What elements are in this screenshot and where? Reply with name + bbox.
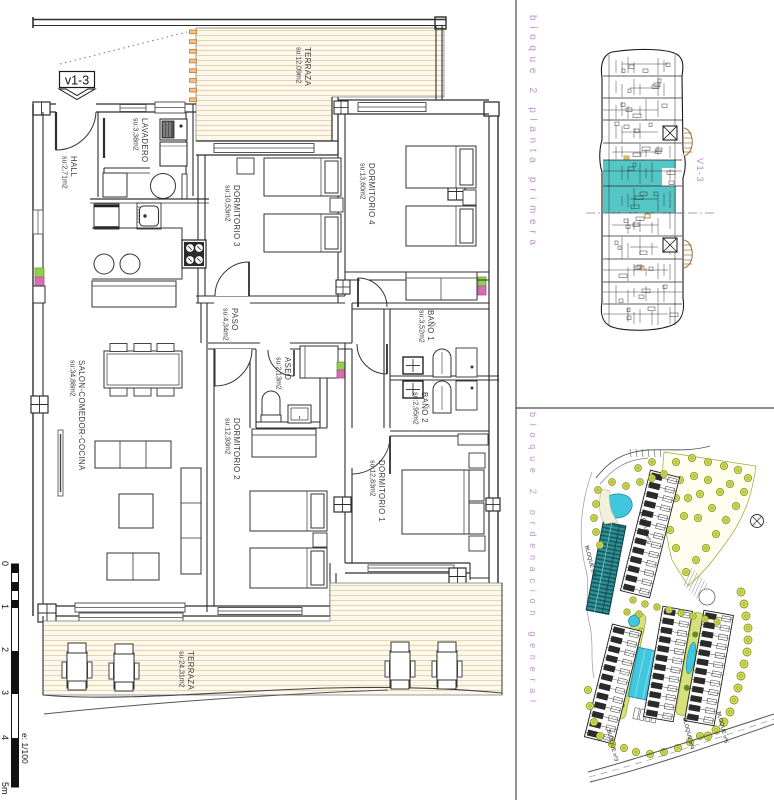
svg-text:su:34,88m2: su:34,88m2 — [69, 360, 76, 397]
svg-text:su:3,52m2: su:3,52m2 — [418, 310, 425, 343]
svg-text:su:24,31m2: su:24,31m2 — [178, 651, 185, 688]
svg-text:3: 3 — [0, 690, 10, 695]
svg-text:HALL: HALL — [69, 156, 78, 177]
svg-text:4: 4 — [0, 735, 10, 740]
svg-text:V1-3: V1-3 — [695, 158, 705, 183]
svg-text:BAÑO 1: BAÑO 1 — [426, 310, 435, 341]
svg-text:su:10,53m2: su:10,53m2 — [224, 185, 231, 222]
svg-text:5m: 5m — [0, 782, 10, 795]
svg-text:PASO: PASO — [230, 308, 239, 331]
svg-text:DORMITORIO 4: DORMITORIO 4 — [367, 163, 376, 225]
svg-text:DORMITORIO 1: DORMITORIO 1 — [377, 460, 386, 522]
svg-text:BAÑO 2: BAÑO 2 — [420, 392, 429, 423]
svg-text:e: 1/100: e: 1/100 — [20, 733, 30, 764]
svg-text:su:2,95m2: su:2,95m2 — [412, 392, 419, 425]
svg-text:su:3,38m2: su:3,38m2 — [132, 118, 139, 151]
svg-text:bloque 2 planta primera: bloque 2 planta primera — [527, 15, 538, 245]
svg-text:LAVADERO: LAVADERO — [140, 118, 149, 163]
svg-text:su:13,60m2: su:13,60m2 — [359, 163, 366, 200]
svg-text:su:12,93m2: su:12,93m2 — [224, 418, 231, 455]
svg-text:DORMITORIO 3: DORMITORIO 3 — [232, 185, 241, 247]
svg-text:1: 1 — [0, 604, 10, 609]
svg-text:SALON-COMEDOR-COCINA: SALON-COMEDOR-COCINA — [77, 360, 86, 471]
svg-text:su:4,34m2: su:4,34m2 — [222, 308, 229, 341]
svg-text:TERRAZA: TERRAZA — [303, 47, 312, 87]
svg-text:v1-3: v1-3 — [65, 74, 89, 88]
svg-text:su:2,13m2: su:2,13m2 — [275, 357, 282, 390]
svg-text:2: 2 — [0, 647, 10, 652]
svg-text:DORMITORIO 2: DORMITORIO 2 — [232, 418, 241, 480]
svg-text:bloque 2 ordenacion general: bloque 2 ordenacion general — [528, 412, 538, 702]
svg-text:su:2,71m2: su:2,71m2 — [61, 156, 68, 189]
svg-text:ASEO: ASEO — [283, 357, 292, 380]
svg-text:0: 0 — [0, 561, 10, 566]
svg-text:su:12,83m2: su:12,83m2 — [369, 460, 376, 497]
svg-text:su:12,09m2: su:12,09m2 — [295, 47, 302, 84]
svg-text:TERRAZA: TERRAZA — [186, 651, 195, 691]
